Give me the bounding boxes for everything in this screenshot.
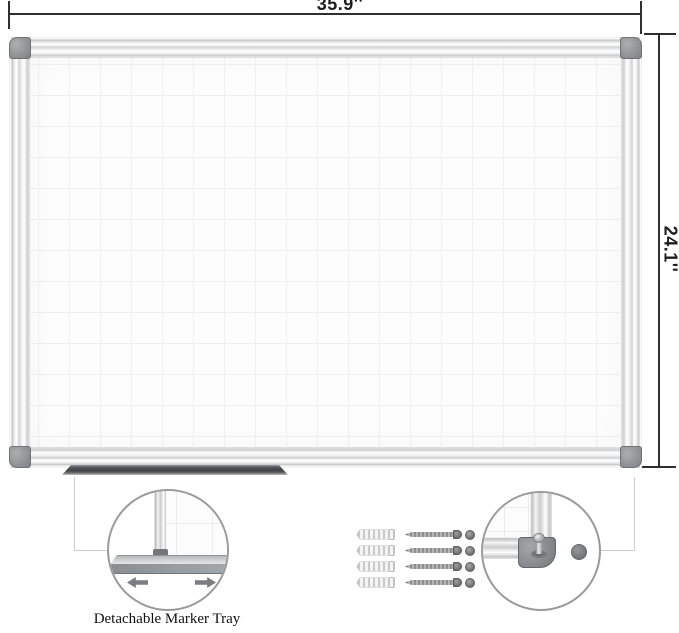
screw-cap-dot — [465, 578, 475, 588]
tray-callout-line-vertical — [74, 477, 75, 551]
corner-callout-line-vertical — [634, 477, 635, 551]
corner-cap-top-right — [620, 37, 642, 59]
slide-right-arrow-icon — [195, 577, 216, 588]
screw-shaft — [404, 548, 454, 553]
frame-right — [622, 37, 642, 468]
tray-detail-tray-front — [107, 564, 229, 574]
height-dimension-top-tick — [644, 33, 676, 35]
corner-pin-head — [533, 533, 545, 543]
screw-shaft — [404, 532, 454, 537]
screw-head — [453, 562, 462, 571]
frame-left — [9, 37, 29, 468]
tray-detail-frame-edge — [154, 491, 166, 557]
corner-cap-bottom-left — [9, 446, 31, 468]
wall-anchor — [357, 545, 395, 556]
corner-cap-top-left — [9, 37, 31, 59]
height-dimension-bottom-tick — [642, 466, 676, 468]
whiteboard — [9, 37, 642, 468]
screw-head — [453, 578, 462, 587]
screw-shaft — [404, 564, 454, 569]
screw-cap-dot — [465, 562, 475, 572]
corner-cap-bottom-right — [620, 446, 642, 468]
screw-head — [453, 530, 462, 539]
magnet-dot — [571, 544, 587, 560]
screw-shaft — [404, 580, 454, 585]
corner-detail-circle — [481, 491, 601, 611]
wall-anchor — [357, 529, 395, 540]
screw-cap-dot — [465, 546, 475, 556]
frame-top — [9, 37, 642, 57]
corner-detail-frame-bottom — [483, 537, 520, 559]
tray-callout-line-horizontal — [74, 550, 108, 551]
wall-anchor — [357, 561, 395, 572]
wall-anchor — [357, 577, 395, 588]
width-dimension-left-tick — [8, 1, 10, 29]
width-dimension-right-tick — [640, 1, 642, 34]
corner-detail-frame-right — [530, 493, 552, 539]
marker-tray — [62, 465, 288, 475]
corner-detail-board-surface — [483, 493, 530, 537]
screw-head — [453, 546, 462, 555]
slide-left-arrow-icon — [127, 577, 148, 588]
tray-caption: Detachable Marker Tray — [87, 611, 247, 628]
corner-callout-line-horizontal — [600, 550, 635, 551]
tray-detail-tray — [107, 555, 229, 574]
product-dimension-diagram: 35.9'' 24.1'' Detachable Marker Tray — [0, 0, 679, 633]
tray-detail-circle — [107, 489, 229, 611]
whiteboard-surface-grid — [29, 57, 622, 448]
tray-detail-board-surface — [166, 491, 227, 557]
height-dimension-label: 24.1'' — [660, 226, 679, 273]
width-dimension-label: 35.9'' — [240, 0, 440, 13]
tray-detail-tray-top — [107, 555, 229, 564]
screw-cap-dot — [465, 530, 475, 540]
